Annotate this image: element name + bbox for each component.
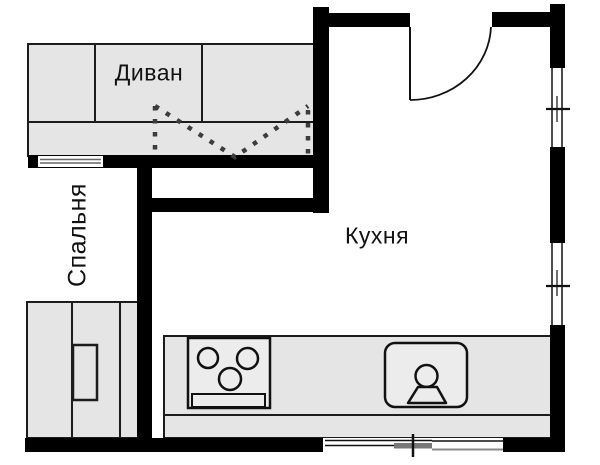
wall-bottom-left: [25, 438, 323, 452]
sofa-label: Диван: [115, 60, 183, 87]
door-swing-icon: [410, 27, 491, 100]
wall-right-middle: [550, 147, 565, 243]
wall-right-upper: [550, 4, 565, 68]
floor-plan: Диван Спальня Кухня: [0, 0, 600, 465]
wall-right-lower: [550, 325, 565, 451]
kitchen-label: Кухня: [345, 223, 409, 250]
window-right-lower-icon: [546, 243, 570, 325]
sink-icon: [385, 343, 467, 407]
wall-bottom-right: [503, 438, 565, 452]
wall-top-b: [492, 12, 550, 27]
wall-top-a: [329, 13, 410, 27]
wardrobe: [27, 302, 140, 438]
radiator-icon: [38, 156, 103, 167]
stove-icon: [188, 338, 270, 408]
window-right-upper-icon: [546, 68, 570, 147]
wall-kitchen-top-left: [152, 198, 329, 212]
wall-kitchen-left: [313, 7, 329, 213]
wall-bedroom: [137, 168, 152, 438]
bedroom-label: Спальня: [64, 183, 93, 287]
